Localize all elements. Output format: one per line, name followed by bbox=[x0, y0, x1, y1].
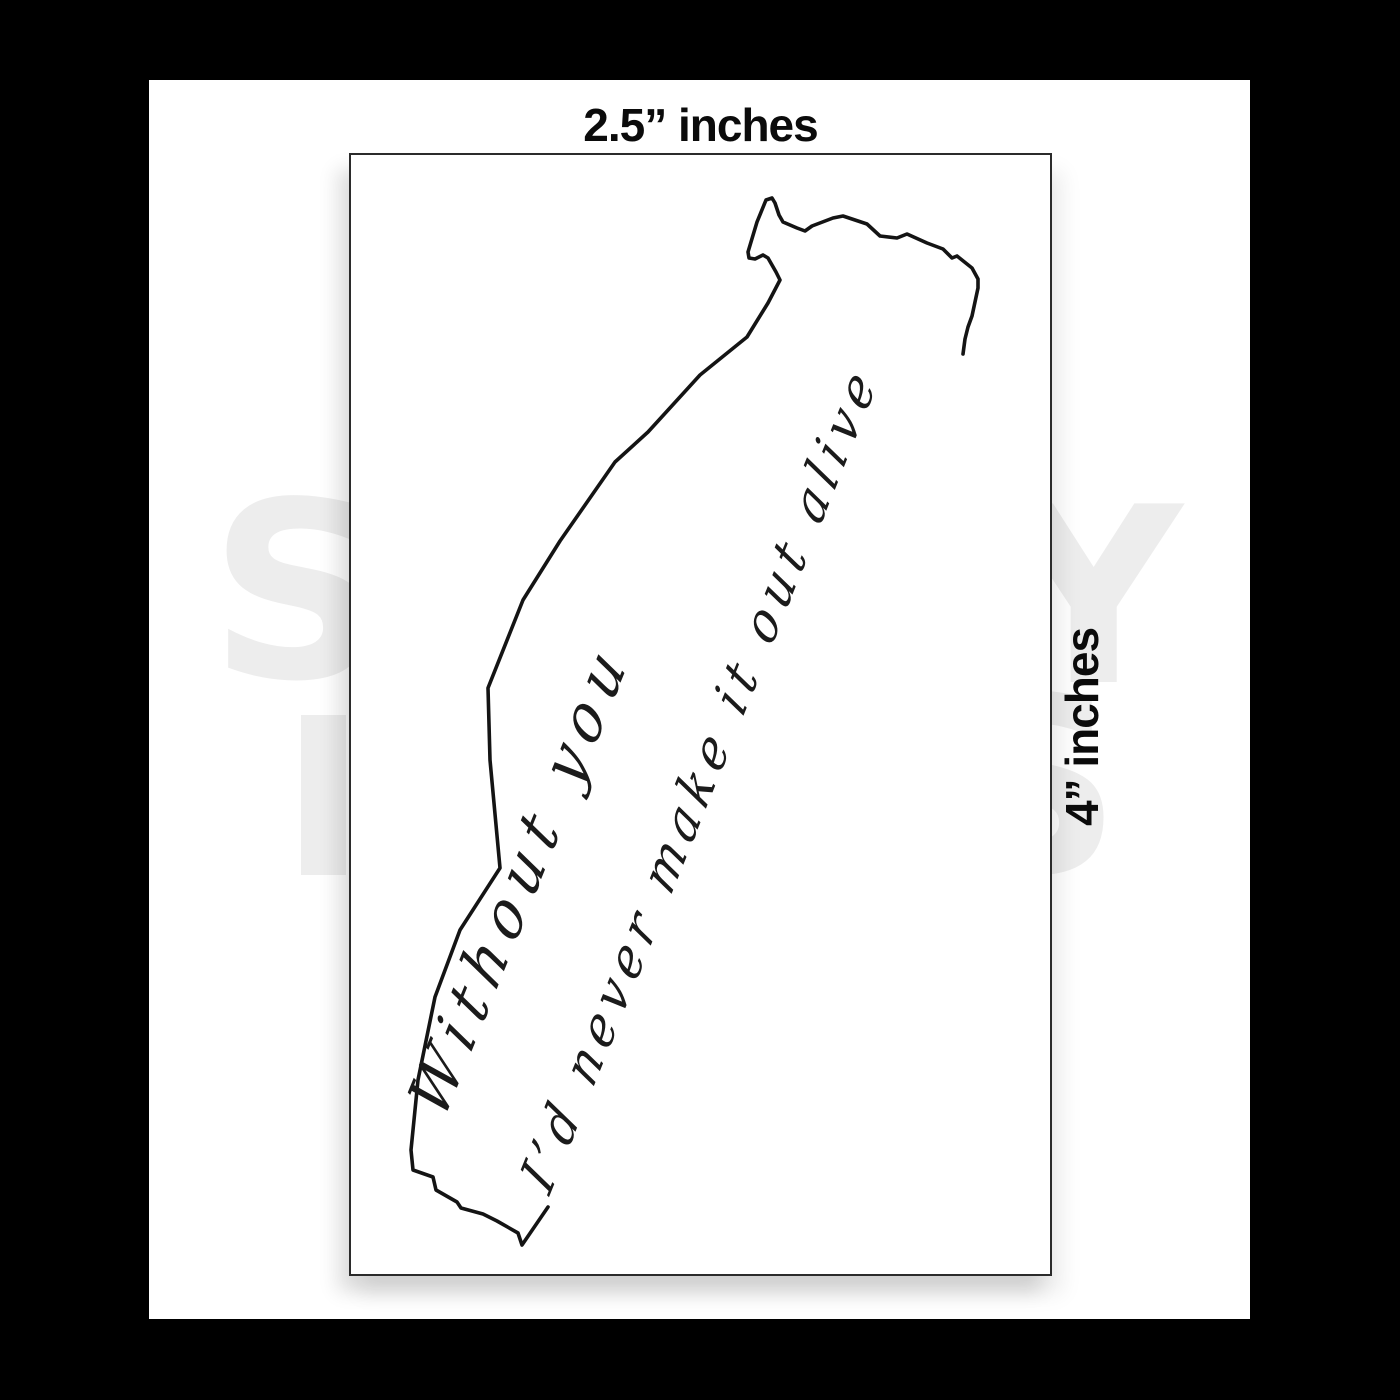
page-background: { "mockup": { "top_size_label": "2.5” in… bbox=[0, 0, 1400, 1400]
width-dimension-label: 2.5” inches bbox=[349, 98, 1052, 152]
height-dimension-label: 4” inches bbox=[1055, 628, 1109, 826]
sticker-card: Without you I’d never make it out alive bbox=[349, 153, 1052, 1276]
mockup-canvas: S Y S 2.5” inches 4” inches Without you … bbox=[149, 80, 1250, 1319]
watermark-partial-letter-block bbox=[301, 715, 346, 875]
